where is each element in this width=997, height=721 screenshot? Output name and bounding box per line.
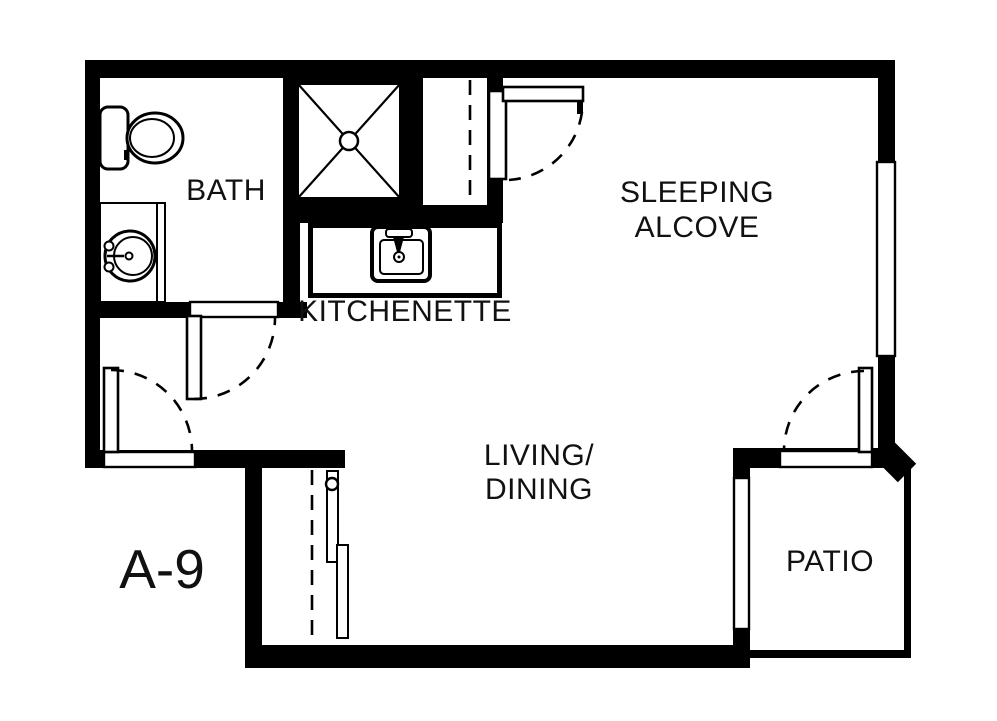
sleeping-alcove-label-line1: SLEEPING <box>620 176 774 209</box>
patio-right-line <box>904 468 911 658</box>
bath-label: BATH <box>186 174 266 207</box>
wardrobe-closet <box>312 470 348 643</box>
bath-door-threshold <box>190 302 278 317</box>
patio-door-threshold <box>780 451 872 467</box>
entry-door-threshold <box>104 452 195 467</box>
bath-door-leaf <box>187 316 201 399</box>
kitchen-faucet-bar <box>386 229 412 237</box>
kitchen-sink-drain-dot <box>398 256 401 259</box>
closet-west-wall <box>245 450 262 668</box>
kitchenette-label: KITCHENETTE <box>298 295 512 328</box>
sink-drain <box>126 253 133 260</box>
closet-door-leaf-open <box>503 87 583 101</box>
living-dining-label-line2: DINING <box>485 473 593 506</box>
closet-door-swing-arc <box>509 112 582 180</box>
living-dining-label-line1: LIVING/ <box>484 439 594 472</box>
toilet <box>100 107 183 169</box>
patio-door <box>780 368 872 467</box>
right-wall-window <box>877 162 895 356</box>
bottom-wall <box>245 645 750 668</box>
patio-window <box>734 478 749 629</box>
shower <box>283 62 423 205</box>
closet-door-leaf-closed <box>489 91 506 179</box>
bath-door-swing-arc <box>194 318 275 399</box>
patio-left-wall-bottom <box>733 628 750 658</box>
floor-plan-drawing: BATH KITCHENETTE SLEEPING ALCOVE LIVING/… <box>0 0 997 721</box>
entry-door-swing-arc <box>111 370 192 451</box>
shower-drain <box>340 132 358 150</box>
kitchen-sink <box>372 227 430 281</box>
toilet-bowl-inner <box>130 119 174 157</box>
sliding-door-knob <box>326 478 338 490</box>
patio-left-wall-top <box>733 448 750 480</box>
toilet-tank <box>100 107 128 169</box>
patio-door-swing-arc <box>784 371 864 451</box>
chamfered-corner-wall <box>886 452 907 473</box>
patio-label: PATIO <box>786 545 874 578</box>
bathroom-sink <box>100 203 165 302</box>
bath-door <box>187 302 278 399</box>
bath-south-wall-left <box>85 302 190 318</box>
unit-number-label: A-9 <box>119 538 205 600</box>
entry-door <box>104 368 195 467</box>
left-wall <box>85 60 100 468</box>
sliding-door-panel-2 <box>337 545 348 638</box>
under-shower-wall <box>283 205 503 223</box>
entry-door-leaf <box>104 368 118 452</box>
sink-faucet-handle-hot <box>105 242 114 251</box>
sink-faucet-handle-cold <box>105 263 114 272</box>
floor-plan: BATH KITCHENETTE SLEEPING ALCOVE LIVING/… <box>0 0 997 721</box>
sleeping-alcove-label-line2: ALCOVE <box>635 211 760 244</box>
patio-bottom-line <box>750 650 911 658</box>
patio-door-leaf <box>859 368 872 452</box>
closet-door <box>489 87 583 180</box>
toilet-seat-hinge <box>124 150 129 160</box>
